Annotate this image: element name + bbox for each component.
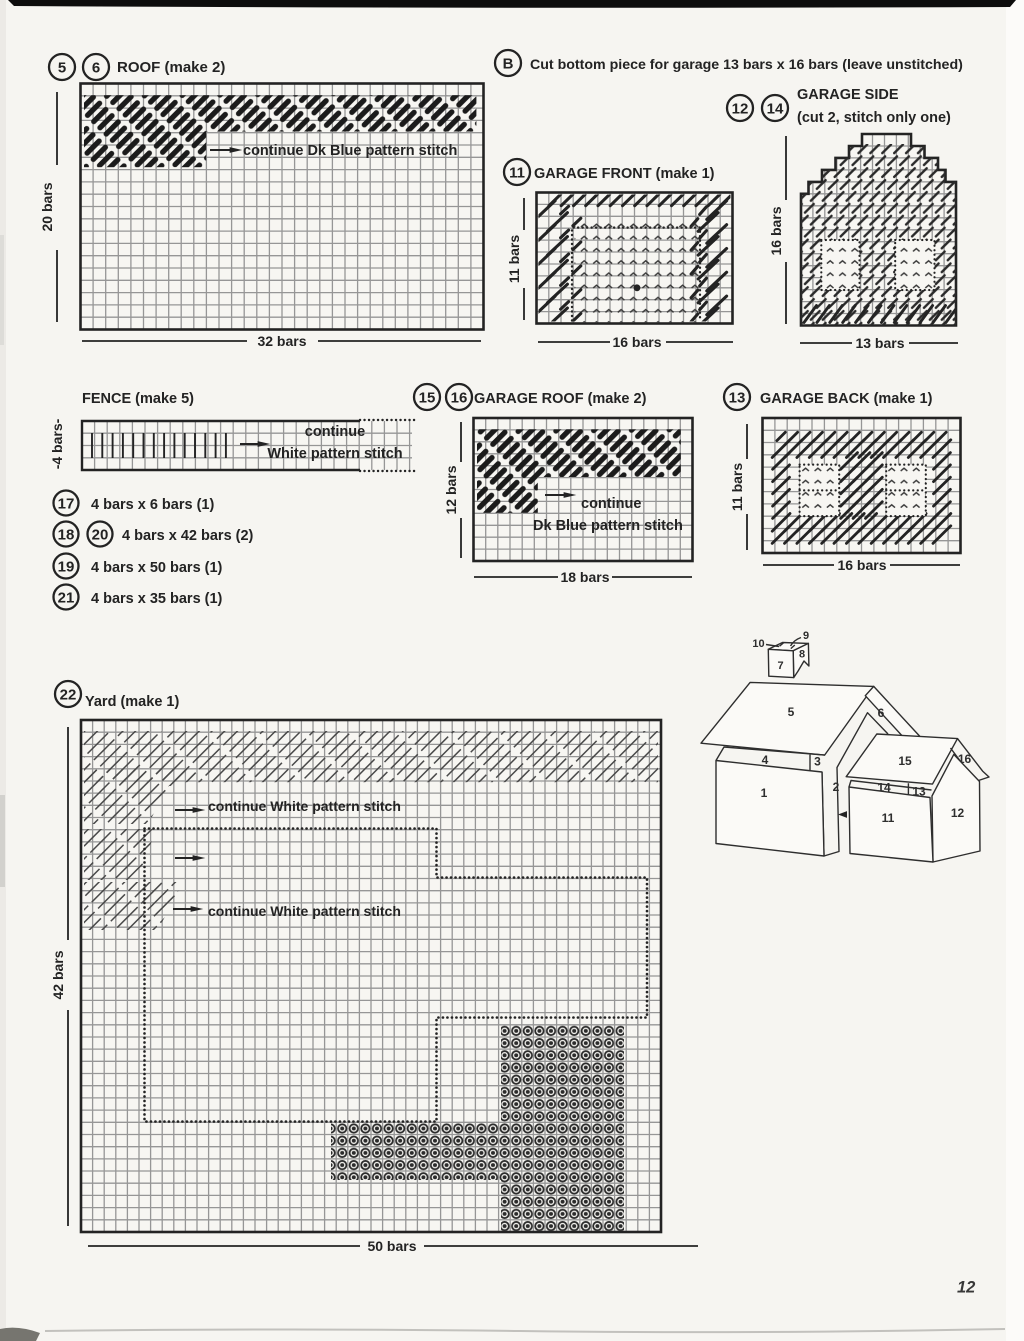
svg-text:22: 22 xyxy=(60,686,77,703)
svg-text:FENCE (make 5): FENCE (make 5) xyxy=(82,391,194,407)
svg-text:20 bars: 20 bars xyxy=(39,182,55,231)
svg-text:Yard (make 1): Yard (make 1) xyxy=(85,694,179,710)
svg-text:10: 10 xyxy=(752,638,764,650)
svg-text:continue White pattern stitch: continue White pattern stitch xyxy=(208,903,401,919)
svg-text:6: 6 xyxy=(92,59,100,76)
svg-text:12: 12 xyxy=(957,1279,975,1297)
svg-text:GARAGE BACK (make 1): GARAGE BACK (make 1) xyxy=(760,391,933,407)
svg-text:18 bars: 18 bars xyxy=(560,569,609,585)
svg-text:6: 6 xyxy=(878,706,885,720)
svg-text:12: 12 xyxy=(732,100,749,117)
svg-text:GARAGE ROOF (make 2): GARAGE ROOF (make 2) xyxy=(474,391,647,407)
svg-text:32 bars: 32 bars xyxy=(257,333,306,349)
svg-text:16 bars: 16 bars xyxy=(837,557,886,573)
svg-text:11: 11 xyxy=(509,164,525,181)
svg-text:4 bars x 6 bars (1): 4 bars x 6 bars (1) xyxy=(91,497,214,513)
svg-text:21: 21 xyxy=(58,589,75,606)
svg-text:13 bars: 13 bars xyxy=(855,335,904,351)
svg-text:17: 17 xyxy=(58,495,75,512)
svg-text:13: 13 xyxy=(729,389,746,406)
svg-text:5: 5 xyxy=(58,59,66,76)
svg-text:continue Dk Blue pattern stitc: continue Dk Blue pattern stitch xyxy=(243,143,457,159)
svg-text:2: 2 xyxy=(833,780,840,794)
svg-text:11 bars: 11 bars xyxy=(506,235,522,283)
svg-text:ROOF (make 2): ROOF (make 2) xyxy=(117,59,225,76)
svg-text:GARAGE SIDE: GARAGE SIDE xyxy=(797,87,899,103)
svg-text:continue: continue xyxy=(305,424,365,440)
svg-text:16 bars: 16 bars xyxy=(612,334,661,350)
svg-text:4 bars x 35 bars (1): 4 bars x 35 bars (1) xyxy=(91,591,223,607)
svg-text:(cut 2, stitch only one): (cut 2, stitch only one) xyxy=(797,110,951,126)
svg-text:7: 7 xyxy=(777,660,783,672)
svg-text:11 bars: 11 bars xyxy=(729,463,745,511)
svg-text:19: 19 xyxy=(58,558,75,575)
svg-text:11: 11 xyxy=(882,811,895,825)
svg-text:8: 8 xyxy=(799,649,805,661)
svg-text:B: B xyxy=(503,55,514,72)
svg-text:3: 3 xyxy=(814,755,821,769)
svg-text:continue White pattern stitch: continue White pattern stitch xyxy=(208,798,401,814)
svg-text:4 bars x 42 bars (2): 4 bars x 42 bars (2) xyxy=(122,528,254,544)
svg-text:18: 18 xyxy=(58,526,75,543)
svg-text:12: 12 xyxy=(951,806,965,820)
svg-text:14: 14 xyxy=(767,100,784,117)
svg-text:Dk Blue pattern stitch: Dk Blue pattern stitch xyxy=(533,518,683,534)
svg-text:continue: continue xyxy=(581,496,641,512)
svg-text:20: 20 xyxy=(92,526,109,543)
svg-text:9: 9 xyxy=(803,630,809,642)
svg-text:Cut bottom piece for garage 13: Cut bottom piece for garage 13 bars x 16… xyxy=(530,57,963,73)
svg-text:12 bars: 12 bars xyxy=(443,465,459,514)
svg-text:15: 15 xyxy=(419,389,436,406)
svg-text:GARAGE FRONT (make 1): GARAGE FRONT (make 1) xyxy=(534,166,715,182)
svg-text:White pattern stitch: White pattern stitch xyxy=(267,446,402,462)
svg-text:42 bars: 42 bars xyxy=(50,950,66,999)
svg-text:16 bars: 16 bars xyxy=(768,206,784,255)
svg-text:16: 16 xyxy=(451,389,468,406)
svg-text:4 bars x 50 bars (1): 4 bars x 50 bars (1) xyxy=(91,560,223,576)
svg-text:50 bars: 50 bars xyxy=(367,1238,416,1254)
svg-text:1: 1 xyxy=(761,786,768,800)
svg-text:-4 bars-: -4 bars- xyxy=(49,418,65,469)
svg-text:15: 15 xyxy=(898,754,912,768)
svg-text:5: 5 xyxy=(788,705,795,719)
